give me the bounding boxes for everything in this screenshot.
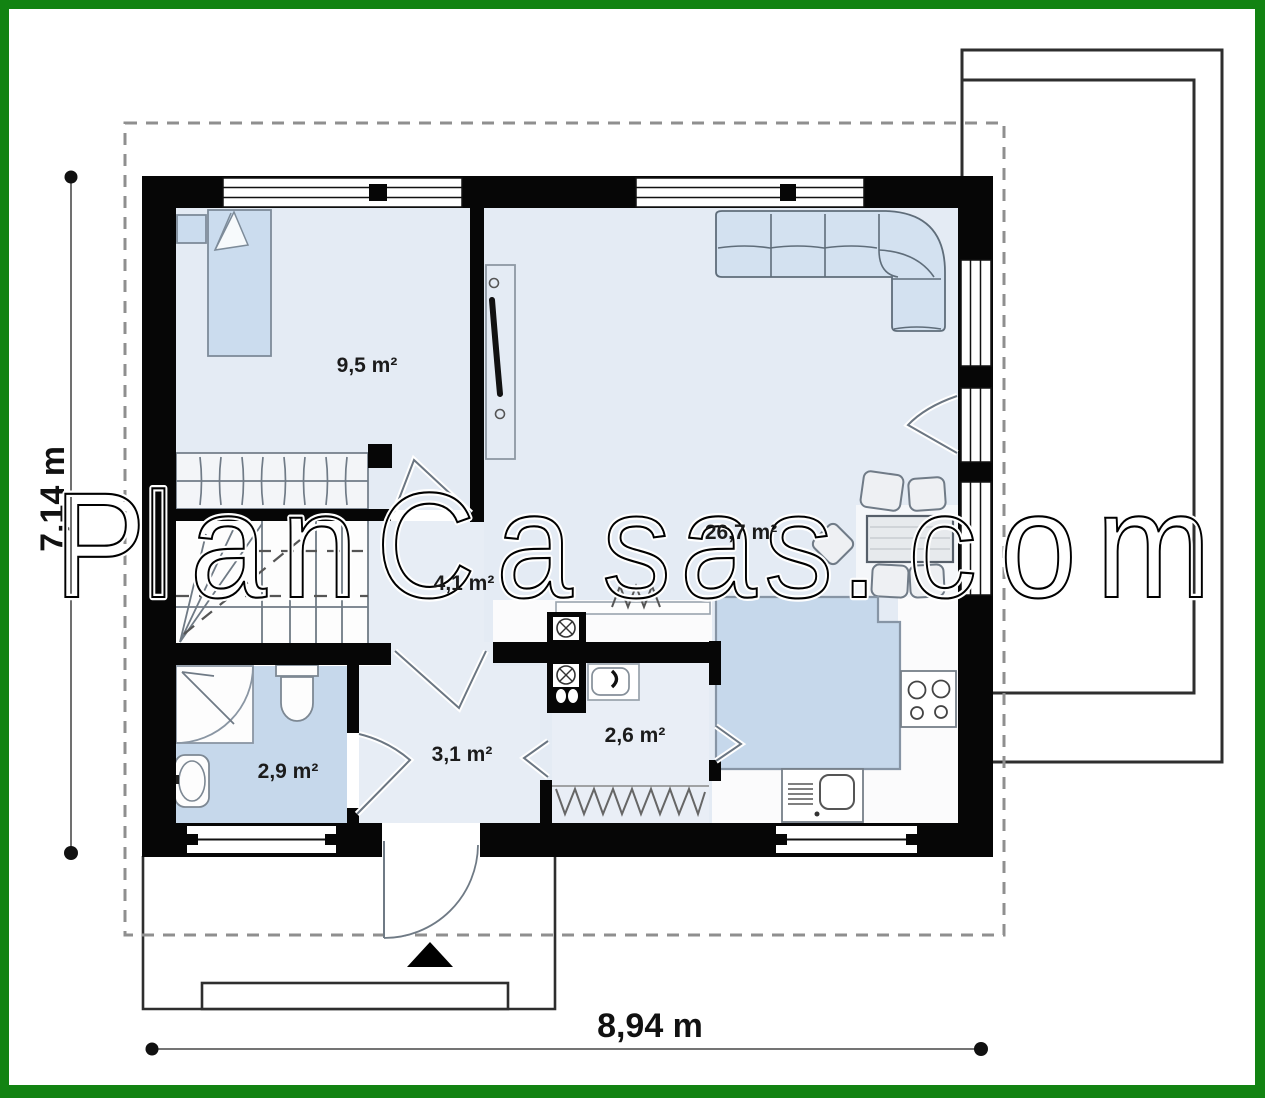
svg-text:m: m [1096,462,1211,630]
svg-text:a: a [680,462,758,630]
svg-text:c: c [908,462,977,630]
svg-text:s: s [602,462,671,630]
svg-text:26,7 m²: 26,7 m² [705,521,777,544]
svg-text:C: C [376,462,476,630]
svg-text:9,5 m²: 9,5 m² [337,354,398,377]
svg-text:P: P [54,462,146,630]
svg-text:8,94 m: 8,94 m [597,1007,703,1045]
svg-text:a: a [496,462,574,630]
svg-text:2,9 m²: 2,9 m² [258,760,319,783]
svg-text:l: l [143,462,174,630]
svg-text:o: o [1000,462,1077,630]
svg-text:a: a [190,462,268,630]
svg-text:2,6 m²: 2,6 m² [605,724,666,747]
svg-text:.: . [840,462,878,630]
svg-text:n: n [281,462,358,630]
svg-text:s: s [764,462,833,630]
svg-text:4,1 m²: 4,1 m² [434,572,495,595]
svg-text:3,1 m²: 3,1 m² [432,743,493,766]
